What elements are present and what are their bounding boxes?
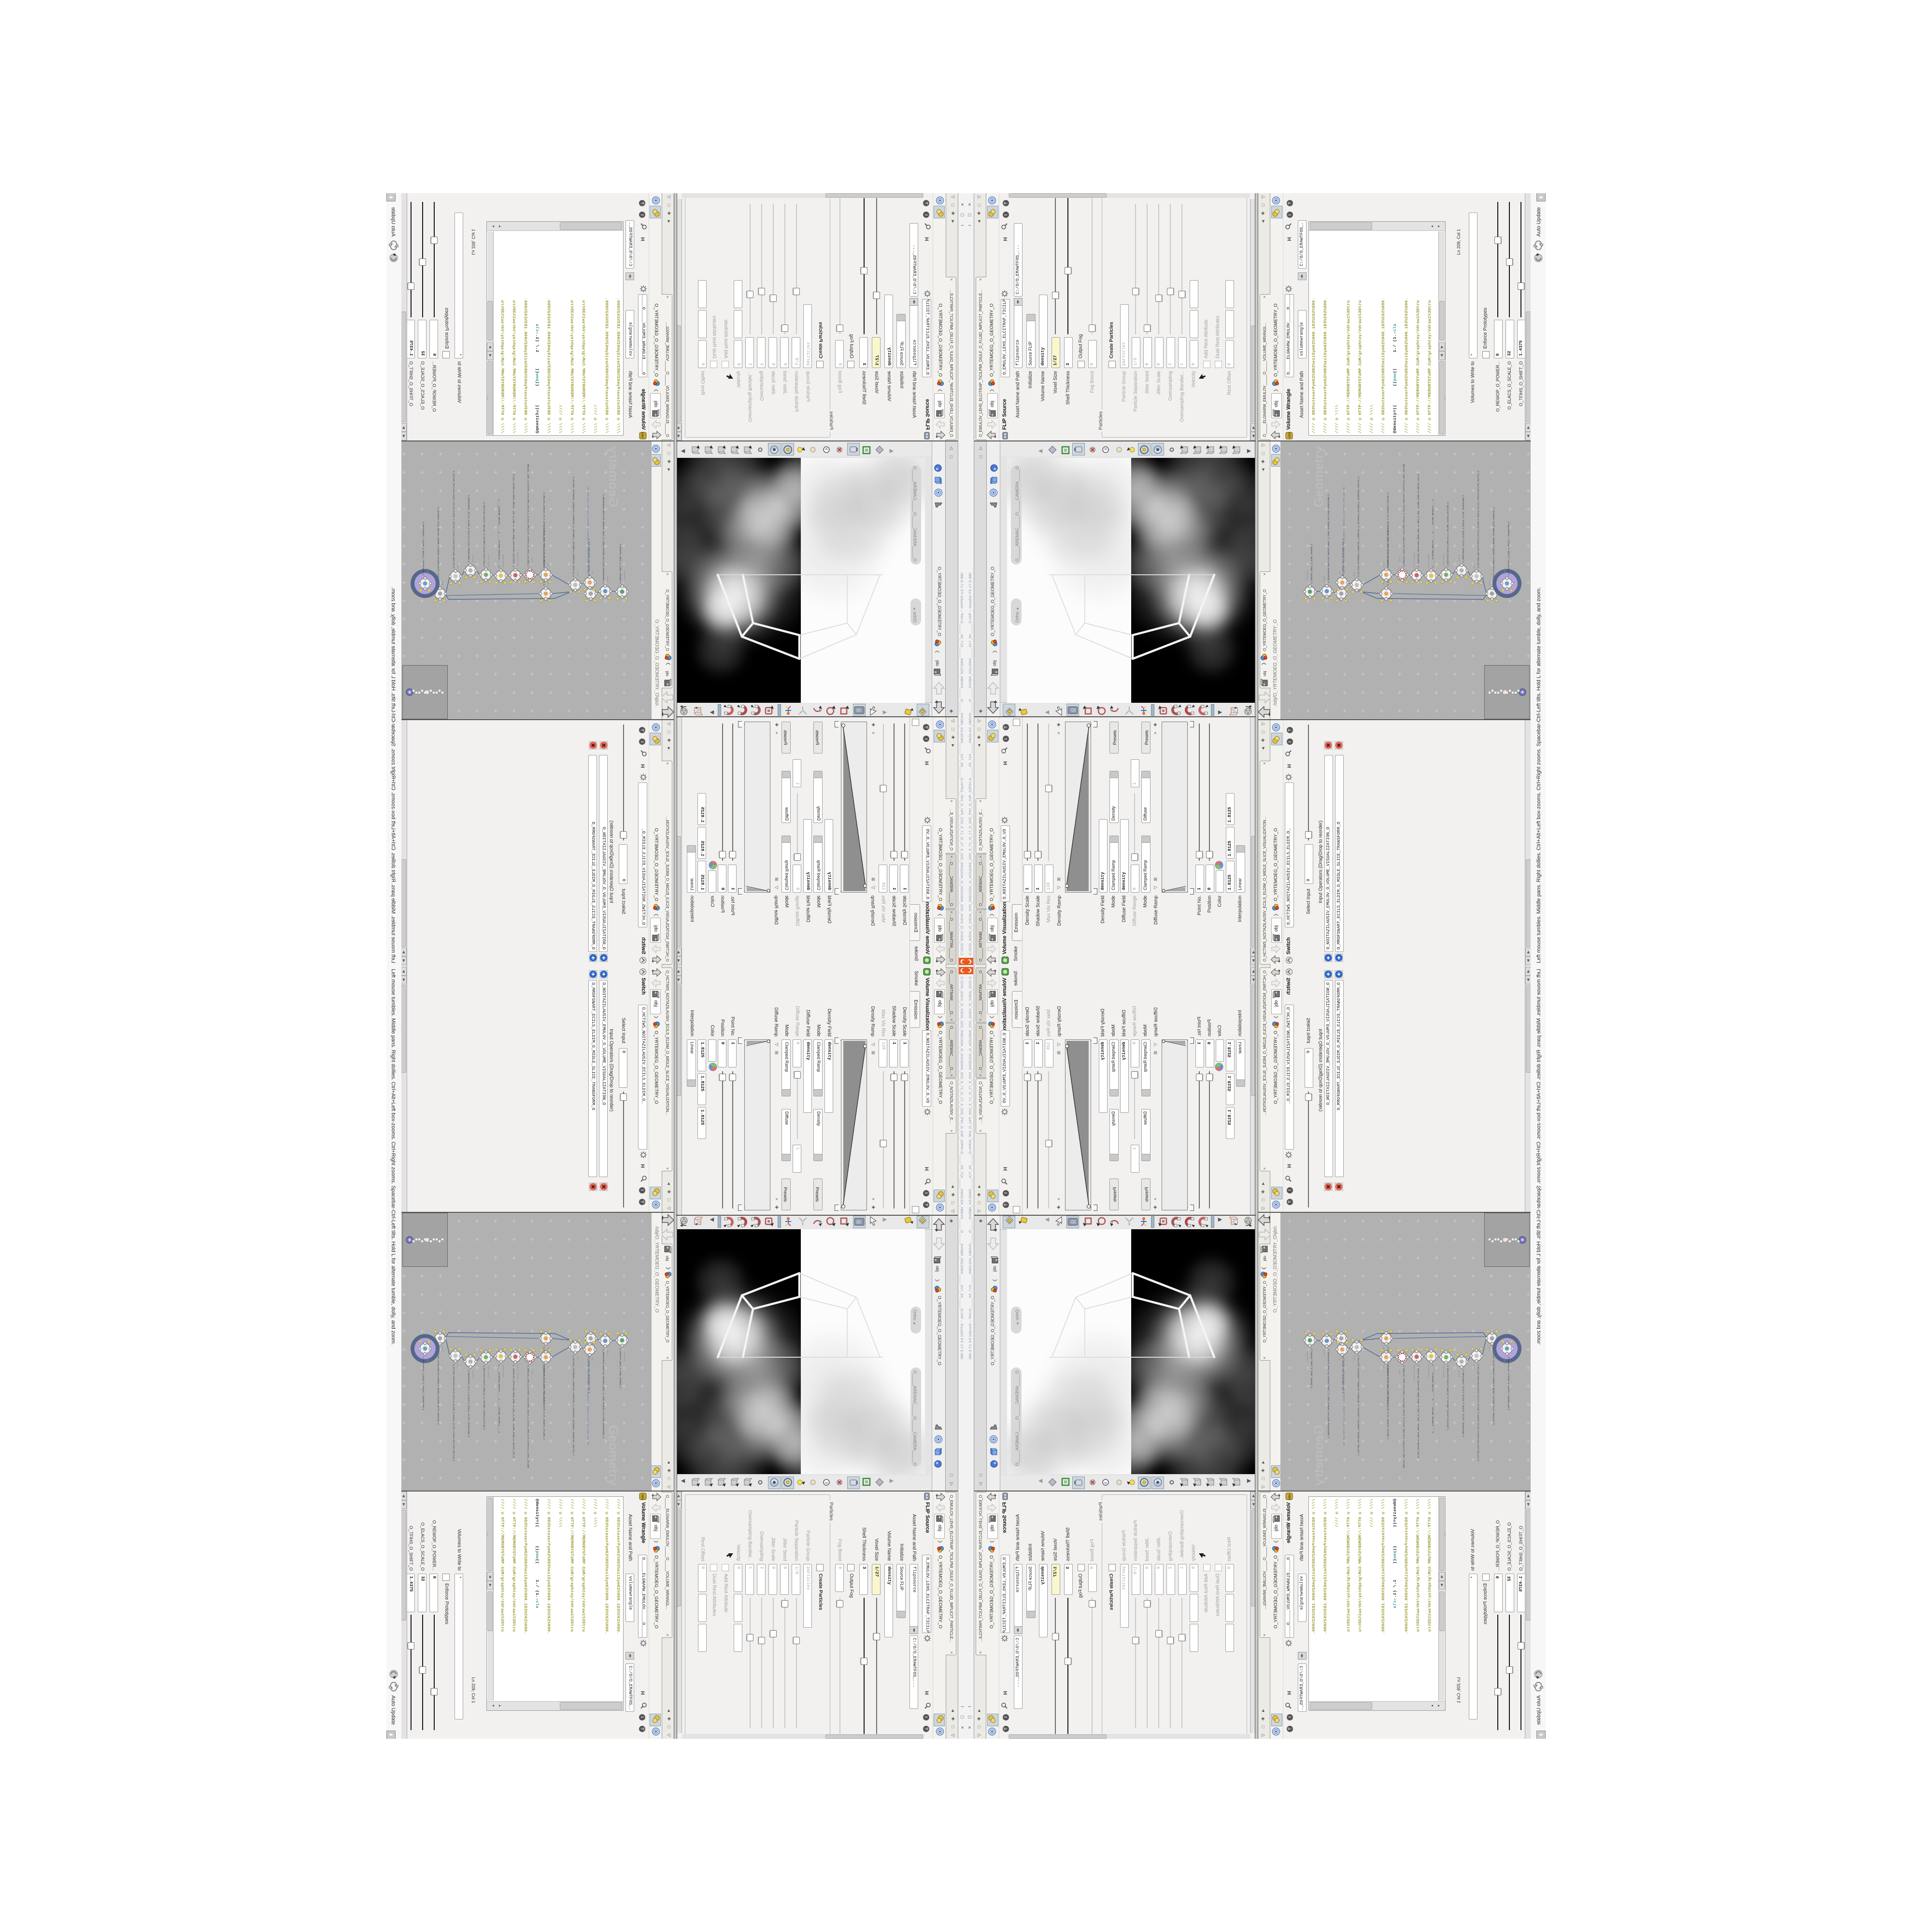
svg-text:3D: 3D <box>1070 708 1076 712</box>
svg-text:3D: 3D <box>856 708 862 712</box>
svg-text:3D: 3D <box>856 1220 862 1224</box>
svg-text:vex: vex <box>1287 432 1292 438</box>
svg-text:vex: vex <box>1287 1494 1292 1500</box>
svg-text:3D: 3D <box>1070 1220 1076 1224</box>
svg-text:vex: vex <box>640 432 645 438</box>
svg-text:vex: vex <box>640 1494 645 1500</box>
